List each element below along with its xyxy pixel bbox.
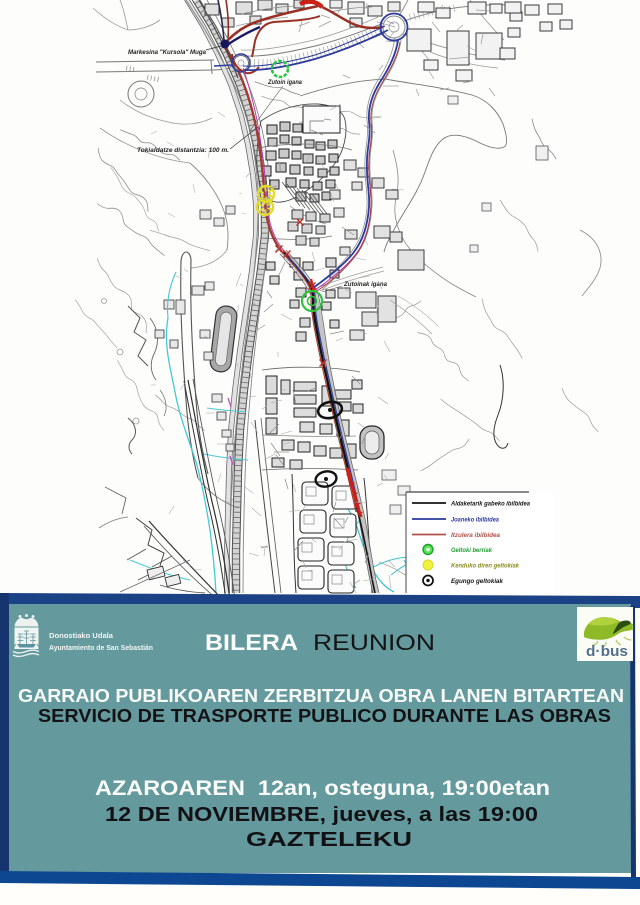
svg-text:GAZTELEKU: GAZTELEKU — [246, 828, 412, 851]
svg-text:Geltoki berriak: Geltoki berriak — [451, 548, 493, 554]
svg-text:d·bus: d·bus — [586, 643, 628, 660]
svg-text:Itzulera ibilbidea: Itzulera ibilbidea — [451, 533, 501, 539]
svg-text:Markesina "Kursola" Muga: Markesina "Kursola" Muga — [128, 49, 206, 56]
svg-text:Aldaketarik gabeko ibilbidea: Aldaketarik gabeko ibilbidea — [450, 502, 531, 508]
svg-text:Donostiako Udala: Donostiako Udala — [49, 631, 114, 640]
svg-text:BILERA: BILERA — [205, 630, 298, 655]
svg-text:GARRAIO PUBLIKOAREN ZERBITZUA: GARRAIO PUBLIKOAREN ZERBITZUA OBRA LANEN… — [18, 686, 624, 706]
svg-text:Zutoin igana: Zutoin igana — [267, 80, 303, 86]
svg-text:Egungo geltokiak: Egungo geltokiak — [451, 579, 504, 585]
svg-text:SERVICIO DE TRASPORTE PUBLICO: SERVICIO DE TRASPORTE PUBLICO DURANTE LA… — [38, 706, 611, 726]
svg-text:Joaneko ibilbidea: Joaneko ibilbidea — [451, 518, 500, 524]
svg-text:Ayuntamiento de San Sebastián: Ayuntamiento de San Sebastián — [49, 643, 153, 652]
svg-text:Kenduko diren geltokiak: Kenduko diren geltokiak — [451, 564, 520, 570]
svg-text:12 DE NOVIEMBRE, jueves, a las: 12 DE NOVIEMBRE, jueves, a las 19:00 — [105, 803, 538, 826]
svg-text:AZAROAREN 12an, osteguna, 19:: AZAROAREN 12an, osteguna, 19:00etan — [95, 777, 550, 800]
svg-text:Tokialdatze distantzia: 100 m.: Tokialdatze distantzia: 100 m. — [137, 147, 229, 154]
svg-text:REUNION: REUNION — [313, 630, 435, 655]
